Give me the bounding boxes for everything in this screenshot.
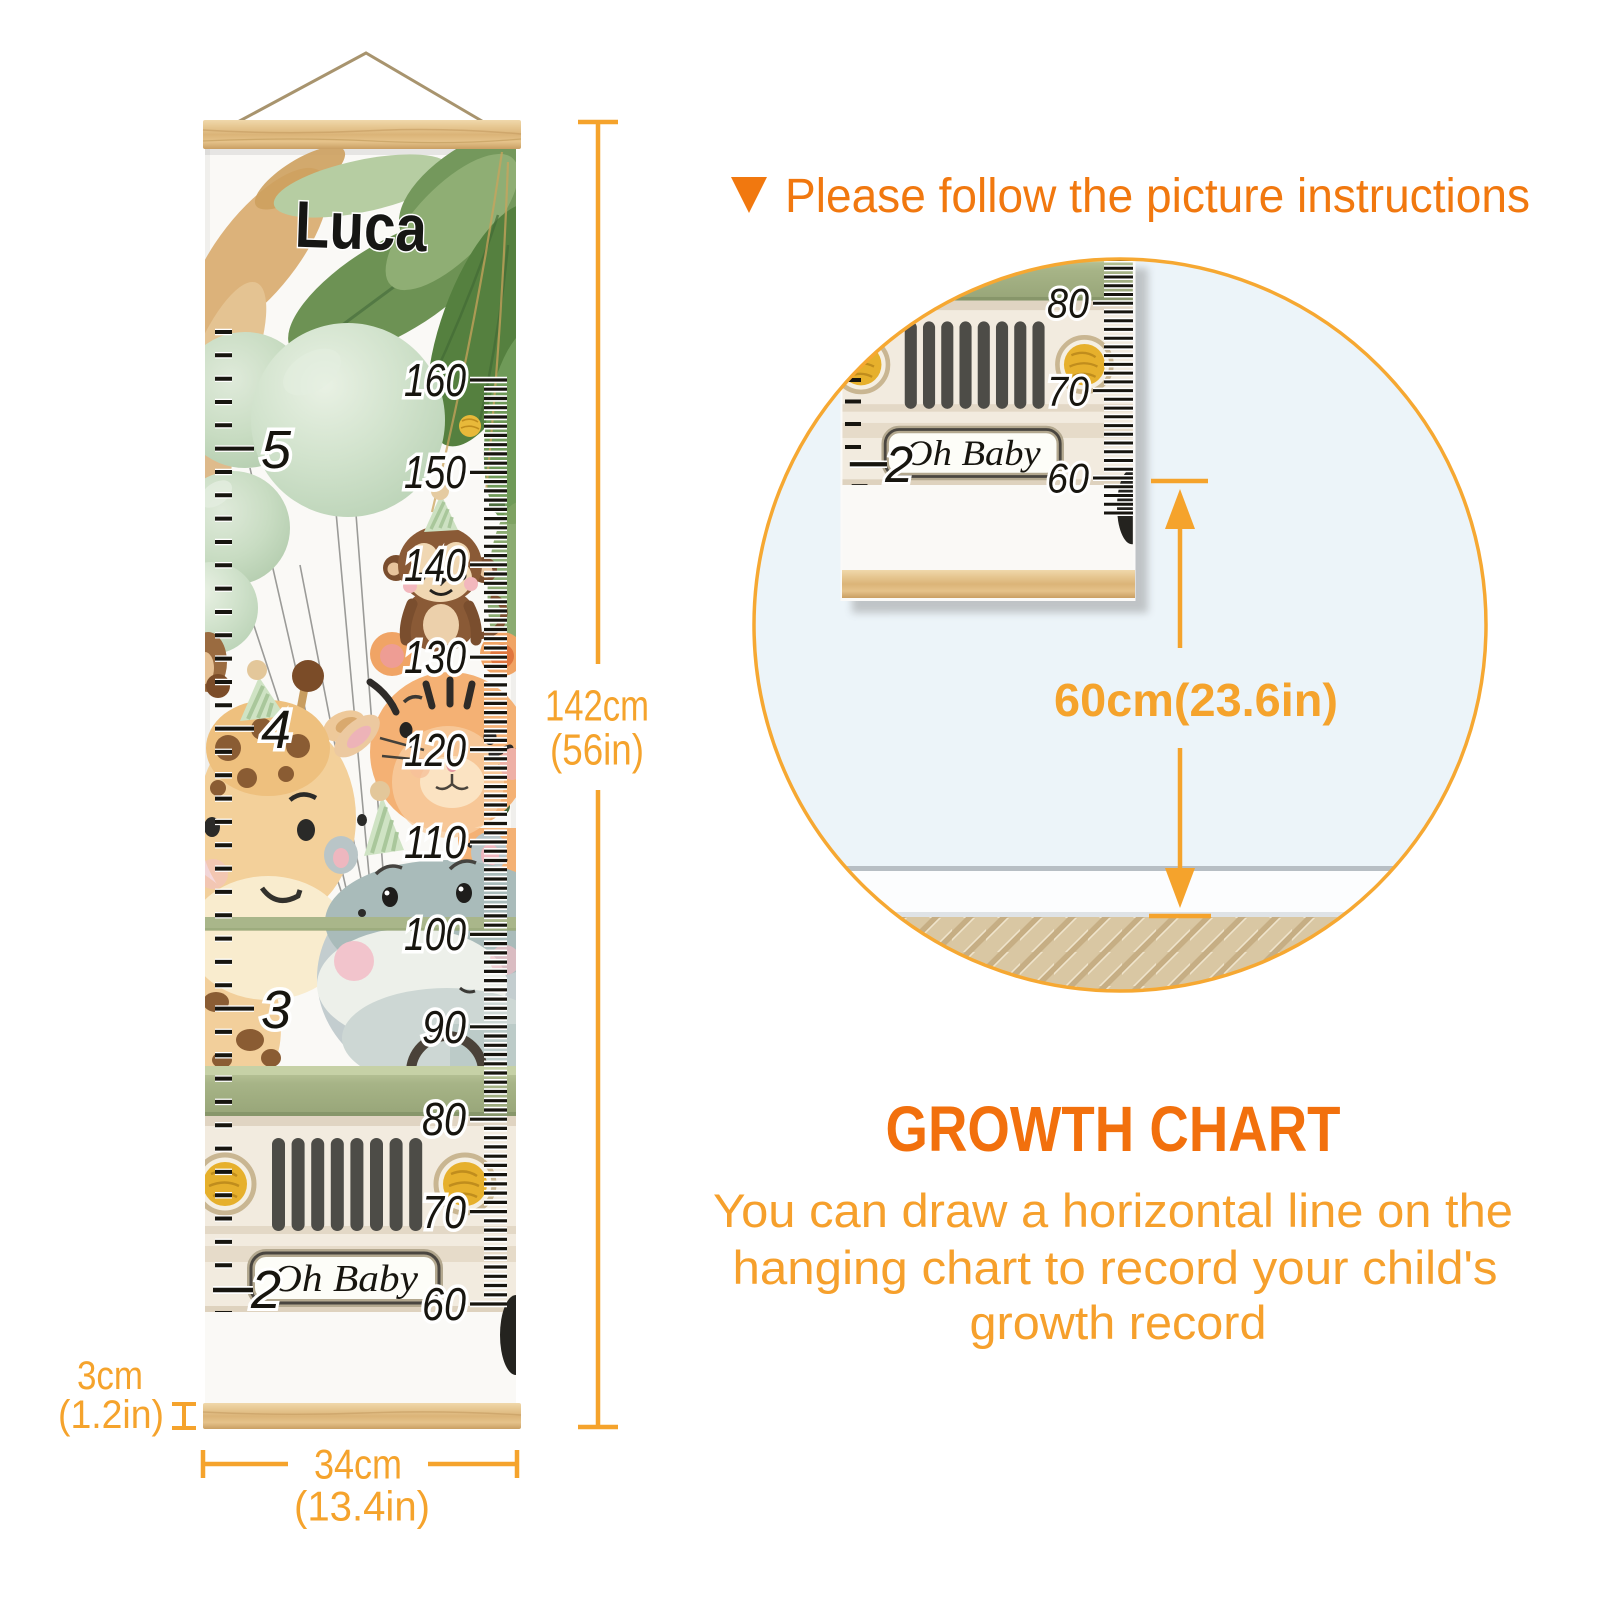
svg-text:Please follow the picture inst: Please follow the picture instructions xyxy=(785,170,1530,223)
svg-text:60cm(23.6in): 60cm(23.6in) xyxy=(1054,674,1338,726)
svg-text:3cm: 3cm xyxy=(77,1354,143,1398)
svg-text:90: 90 xyxy=(422,1001,466,1053)
svg-text:60: 60 xyxy=(1047,455,1090,502)
svg-text:4: 4 xyxy=(261,700,291,760)
svg-text:5: 5 xyxy=(261,420,292,480)
svg-text:142cm: 142cm xyxy=(545,682,649,731)
svg-text:70: 70 xyxy=(422,1186,466,1238)
svg-text:70: 70 xyxy=(1047,368,1090,415)
svg-text:60: 60 xyxy=(422,1278,466,1330)
svg-text:34cm: 34cm xyxy=(314,1441,402,1488)
svg-text:growth record: growth record xyxy=(970,1296,1267,1349)
svg-text:You can draw a horizontal line: You can draw a horizontal line on the xyxy=(713,1184,1513,1237)
svg-text:(1.2in): (1.2in) xyxy=(58,1393,164,1437)
svg-text:150: 150 xyxy=(404,446,466,498)
svg-text:100: 100 xyxy=(404,908,466,960)
svg-text:80: 80 xyxy=(1047,280,1090,327)
svg-text:Luca: Luca xyxy=(294,187,430,266)
svg-text:3: 3 xyxy=(261,980,291,1040)
svg-text:(13.4in): (13.4in) xyxy=(294,1483,430,1530)
svg-text:140: 140 xyxy=(404,539,466,591)
svg-text:110: 110 xyxy=(404,816,466,868)
svg-text:(56in): (56in) xyxy=(550,726,644,775)
svg-text:GROWTH CHART: GROWTH CHART xyxy=(886,1093,1341,1165)
svg-text:120: 120 xyxy=(404,724,466,776)
svg-text:hanging chart to record your c: hanging chart to record your child's xyxy=(733,1241,1498,1294)
svg-text:80: 80 xyxy=(422,1093,466,1145)
svg-text:160: 160 xyxy=(404,354,466,406)
svg-text:130: 130 xyxy=(404,631,466,683)
